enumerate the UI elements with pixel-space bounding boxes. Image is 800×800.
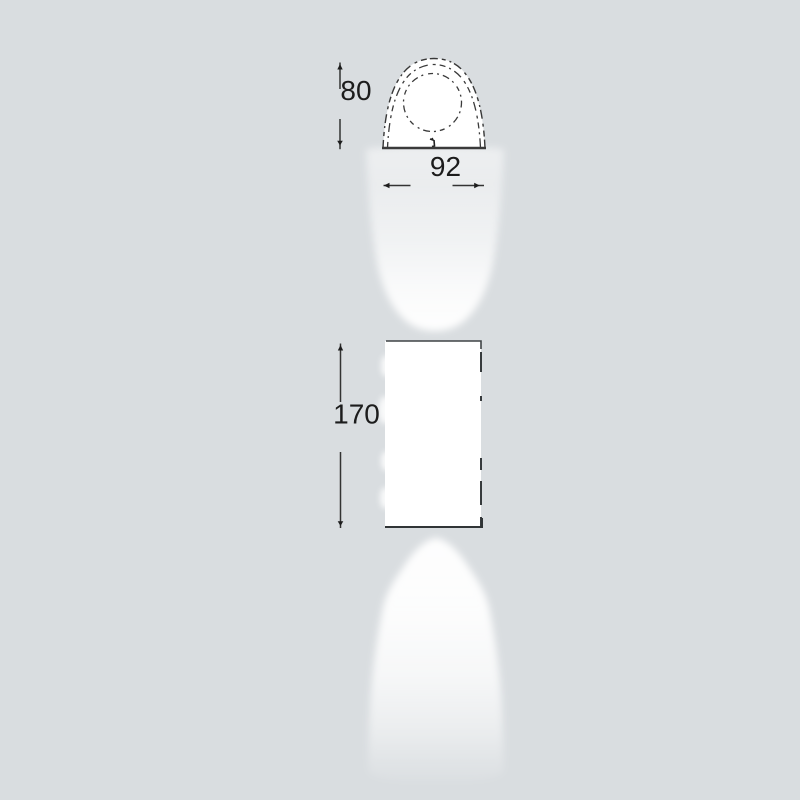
- svg-text:80: 80: [340, 75, 371, 106]
- svg-text:92: 92: [430, 151, 461, 182]
- svg-text:170: 170: [333, 399, 380, 430]
